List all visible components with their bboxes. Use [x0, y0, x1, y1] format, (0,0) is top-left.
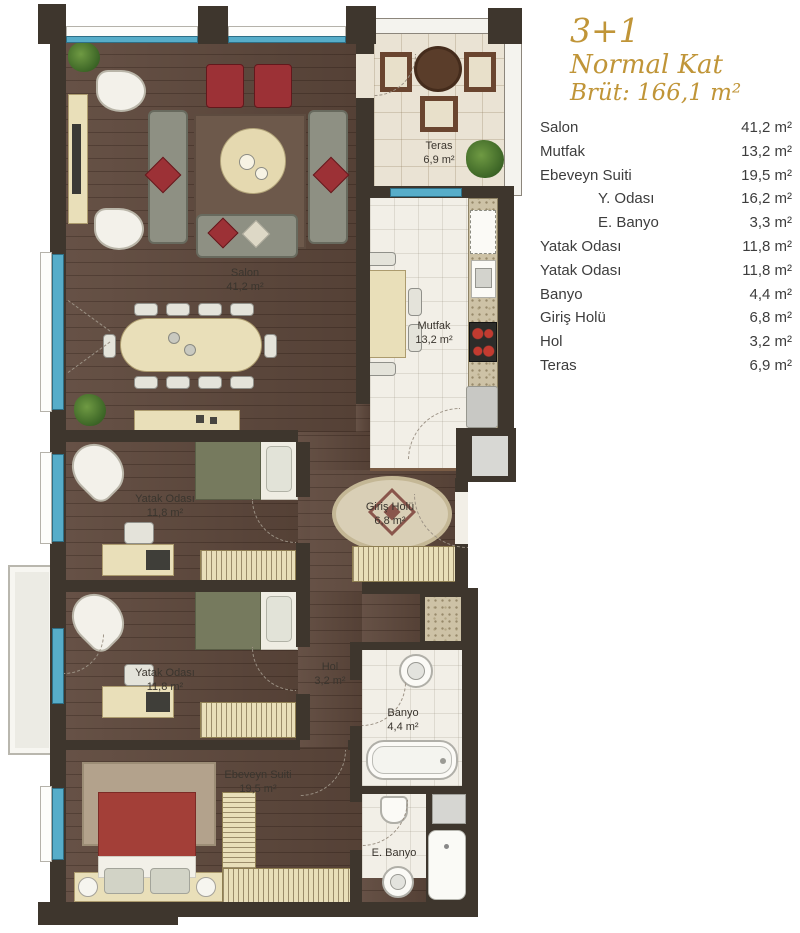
plan-type-title: 3+1	[570, 12, 741, 50]
room-name: Banyo	[343, 706, 463, 720]
wall	[296, 543, 310, 592]
title-block: 3+1 Normal Kat Brüt: 166,1 m²	[570, 12, 741, 107]
kitchen-chair	[366, 362, 396, 376]
room-label-yatak1: Yatak Odası 11,8 m²	[105, 492, 225, 520]
bed-pillow	[266, 596, 292, 642]
room-area: 4,4 m²	[343, 720, 463, 734]
wall	[362, 642, 462, 650]
wall	[60, 740, 300, 750]
sink-basin	[390, 874, 406, 890]
side-balcony	[8, 565, 56, 755]
dining-chair	[166, 303, 190, 316]
wall	[38, 902, 478, 917]
legend-room-area: 6,9 m²	[749, 357, 792, 381]
legend-row: Ebeveyn Suiti19,5 m²	[540, 167, 792, 191]
room-area: 11,8 m²	[105, 506, 225, 520]
wall	[296, 592, 310, 647]
desk-monitor	[146, 692, 170, 712]
bed-pillow	[266, 446, 292, 492]
kitchen-chair	[366, 252, 396, 266]
wall-pillar	[346, 6, 376, 44]
sink-basin	[407, 662, 425, 680]
legend-row: Giriş Holü6,8 m²	[540, 309, 792, 333]
window	[228, 36, 346, 43]
sink-basin	[475, 268, 492, 288]
wall	[356, 196, 370, 404]
legend-row: E. Banyo3,3 m²	[540, 214, 792, 238]
window-sill	[40, 252, 52, 412]
wall	[498, 186, 514, 442]
floor-plan-page: Salon 41,2 m² Mutfak 13,2 m² Teras 6,9 m…	[0, 0, 800, 933]
legend-row: Banyo4,4 m²	[540, 286, 792, 310]
room-area: 41,2 m²	[185, 280, 305, 294]
terrace-round-table	[414, 46, 462, 92]
drain-icon	[440, 758, 446, 764]
fridge	[466, 386, 498, 428]
wall	[356, 22, 374, 198]
room-area: 11,8 m²	[105, 680, 225, 694]
legend-row: Y. Odası16,2 m²	[540, 190, 792, 214]
room-label-salon: Salon 41,2 m²	[185, 266, 305, 294]
wardrobe	[200, 550, 296, 582]
shower-tray	[428, 830, 466, 900]
room-name: Ebeveyn Suiti	[198, 768, 318, 782]
legend-room-name: Teras	[540, 357, 577, 381]
shaft	[420, 592, 466, 646]
dining-chair	[166, 376, 190, 389]
legend-room-area: 3,3 m²	[749, 214, 792, 238]
room-label-giris-holu: Giriş Holü 6,8 m²	[330, 500, 450, 528]
legend-row: Teras6,9 m²	[540, 357, 792, 381]
red-chair	[206, 64, 244, 108]
legend: Salon41,2 m²Mutfak13,2 m²Ebeveyn Suiti19…	[540, 119, 792, 381]
legend-room-name: E. Banyo	[598, 214, 659, 238]
tray	[255, 167, 268, 180]
plant-icon	[68, 42, 100, 72]
window	[52, 254, 64, 410]
overhead-cabinet	[470, 210, 496, 254]
kitchen-chair	[408, 288, 422, 316]
dining-chair	[230, 376, 254, 389]
washer	[432, 794, 466, 824]
dining-chair	[230, 303, 254, 316]
terrace-door-opening	[356, 54, 374, 98]
room-area: 13,2 m²	[374, 333, 494, 347]
room-label-hol: Hol 3,2 m²	[298, 660, 362, 688]
dining-chair	[198, 303, 222, 316]
legend-room-name: Hol	[540, 333, 563, 357]
legend-room-name: Mutfak	[540, 143, 585, 167]
armchair	[94, 208, 144, 250]
legend-row: Mutfak13,2 m²	[540, 143, 792, 167]
room-name: Hol	[298, 660, 362, 674]
kitchen-door-threshold	[356, 404, 370, 432]
tray	[239, 154, 255, 170]
window-sill	[40, 452, 52, 544]
double-bed	[98, 792, 196, 862]
wall	[362, 582, 464, 594]
wall	[350, 726, 362, 802]
armchair	[96, 70, 146, 112]
legend-room-area: 41,2 m²	[741, 119, 792, 143]
room-area: 3,2 m²	[298, 674, 362, 688]
wall	[296, 442, 310, 497]
terrace-railing	[504, 18, 522, 196]
legend-room-name: Salon	[540, 119, 578, 143]
wall	[38, 916, 178, 925]
legend-room-name: Ebeveyn Suiti	[540, 167, 632, 191]
kitchen-window	[390, 188, 462, 197]
gross-area-title: Brüt: 166,1 m²	[570, 80, 741, 107]
window-sill	[40, 786, 52, 862]
wall-pillar	[38, 4, 66, 44]
terrace-chair	[464, 52, 496, 92]
floor-title: Normal Kat	[570, 50, 741, 80]
legend-room-name: Y. Odası	[598, 190, 654, 214]
dining-chair	[134, 376, 158, 389]
wardrobe	[200, 702, 296, 738]
room-label-mutfak: Mutfak 13,2 m²	[374, 319, 494, 347]
legend-row: Hol3,2 m²	[540, 333, 792, 357]
legend-room-area: 13,2 m²	[741, 143, 792, 167]
room-label-e-banyo: E. Banyo	[334, 846, 454, 860]
room-name: Teras	[379, 139, 499, 153]
legend-room-area: 11,8 m²	[742, 262, 792, 286]
legend-room-area: 19,5 m²	[741, 167, 792, 191]
hall-strip-floor	[362, 592, 422, 644]
room-area: 6,8 m²	[330, 514, 450, 528]
room-label-yatak2: Yatak Odası 11,8 m²	[105, 666, 225, 694]
window	[66, 36, 198, 43]
wall	[60, 580, 298, 592]
room-name: Giriş Holü	[330, 500, 450, 514]
bed-pillow	[150, 868, 190, 894]
legend-room-name: Yatak Odası	[540, 262, 621, 286]
wall	[455, 544, 468, 588]
wall-pillar	[488, 8, 522, 44]
kitchen-threshold	[370, 468, 468, 471]
legend-room-area: 16,2 m²	[741, 190, 792, 214]
entry-wardrobe	[352, 546, 464, 582]
wall	[60, 430, 298, 442]
legend-row: Yatak Odası11,8 m²	[540, 238, 792, 262]
terrace-side-table	[420, 96, 458, 132]
room-name: Mutfak	[374, 319, 494, 333]
room-name: Salon	[185, 266, 305, 280]
dining-chair	[264, 334, 277, 358]
legend-room-area: 6,8 m²	[749, 309, 792, 333]
sideboard	[134, 410, 240, 432]
wall	[296, 694, 310, 740]
nightstand	[78, 877, 98, 897]
room-area: 6,9 m²	[379, 153, 499, 167]
room-area: 19,5 m²	[198, 782, 318, 796]
legend-room-area: 4,4 m²	[749, 286, 792, 310]
table-decor	[168, 332, 180, 344]
desk-chair	[124, 522, 154, 544]
nightstand	[196, 877, 216, 897]
legend-room-area: 11,8 m²	[742, 238, 792, 262]
desk-monitor	[146, 550, 170, 570]
room-label-teras: Teras 6,9 m²	[379, 139, 499, 167]
bed-blanket	[195, 438, 261, 500]
dining-chair	[198, 376, 222, 389]
plant-icon	[74, 394, 106, 426]
bed-blanket	[195, 588, 261, 650]
entry-landing	[472, 436, 508, 476]
legend-room-name: Giriş Holü	[540, 309, 606, 333]
decor-item	[210, 417, 217, 424]
window	[52, 454, 64, 542]
legend-row: Salon41,2 m²	[540, 119, 792, 143]
tv-screen	[72, 124, 81, 194]
window	[52, 788, 64, 860]
dining-chair	[134, 303, 158, 316]
room-name: E. Banyo	[334, 846, 454, 860]
legend-room-name: Banyo	[540, 286, 583, 310]
room-label-ebeveyn: Ebeveyn Suiti 19,5 m²	[198, 768, 318, 796]
legend-row: Yatak Odası11,8 m²	[540, 262, 792, 286]
legend-room-name: Yatak Odası	[540, 238, 621, 262]
table-decor	[184, 344, 196, 356]
room-name: Yatak Odası	[105, 492, 225, 506]
red-chair	[254, 64, 292, 108]
wall-pillar	[198, 6, 228, 44]
balcony-door-window	[52, 628, 64, 704]
room-name: Yatak Odası	[105, 666, 225, 680]
decor-item	[196, 415, 204, 423]
legend-room-area: 3,2 m²	[749, 333, 792, 357]
wardrobe	[222, 868, 360, 904]
room-label-banyo: Banyo 4,4 m²	[343, 706, 463, 734]
bed-pillow	[104, 868, 144, 894]
